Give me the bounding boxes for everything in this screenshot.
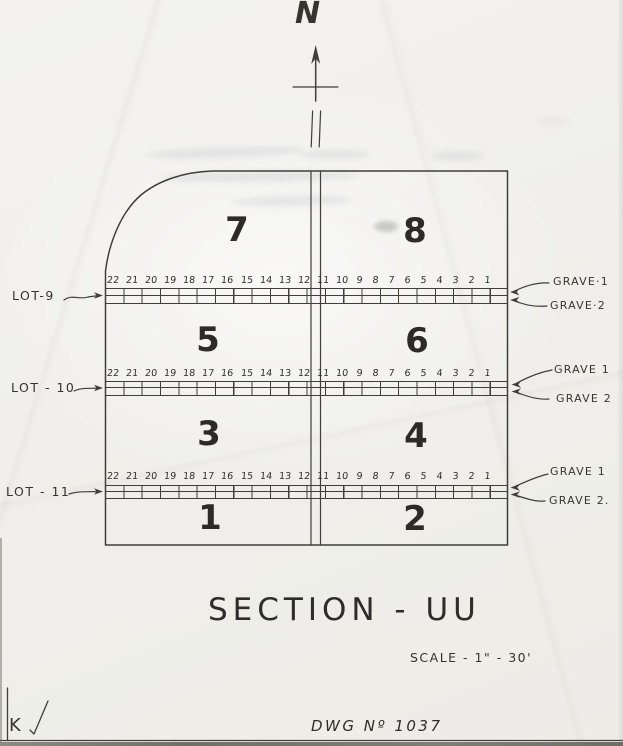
grave-number: 8 xyxy=(371,471,381,482)
lot-11-grave-1-label: GRAVE 1 xyxy=(550,465,606,478)
grave-number: 12 xyxy=(297,368,310,379)
grave-number: 4 xyxy=(434,471,444,482)
section-5-number: 5 xyxy=(196,320,220,360)
scan-edge-right xyxy=(617,0,623,746)
grave-number: 1 xyxy=(482,275,492,286)
grave-number: 13 xyxy=(278,368,291,379)
grave-number: 17 xyxy=(202,275,215,286)
grave-number: 5 xyxy=(418,275,428,286)
grave-number: 14 xyxy=(259,368,272,379)
grave-number: 10 xyxy=(335,471,348,482)
grave-number: 11 xyxy=(316,368,329,379)
grave-leader-arrows xyxy=(514,283,552,501)
scan-edge-bottom xyxy=(0,742,623,746)
grave-number: 13 xyxy=(278,471,291,482)
grave-number: 8 xyxy=(371,275,381,286)
grave-number: 20 xyxy=(145,368,158,379)
grave-number: 18 xyxy=(183,368,196,379)
grave-number: 18 xyxy=(183,471,196,482)
grave-number: 1 xyxy=(482,368,492,379)
lot-9-grave-numbers: 22212019181716151413121110987654321 xyxy=(107,275,492,286)
grave-number: 21 xyxy=(126,471,139,482)
grave-number: 6 xyxy=(402,368,412,379)
grave-number: 11 xyxy=(316,471,329,482)
lot-10-label: LOT - 10 xyxy=(11,380,75,395)
grave-number: 18 xyxy=(183,275,196,286)
grave-number: 2 xyxy=(466,368,476,379)
grave-number: 2 xyxy=(466,471,476,482)
grave-number: 7 xyxy=(387,368,397,379)
grave-number: 20 xyxy=(145,471,158,482)
grave-number: 9 xyxy=(355,368,365,379)
grave-number: 13 xyxy=(278,275,291,286)
grave-number: 22 xyxy=(107,368,120,379)
grave-number: 19 xyxy=(164,275,177,286)
grave-number: 3 xyxy=(450,368,460,379)
section-3-number: 3 xyxy=(197,414,221,454)
north-label: N xyxy=(295,0,320,31)
lot-10-grave-2-label: GRAVE 2 xyxy=(556,392,612,405)
grave-number: 2 xyxy=(466,275,476,286)
grave-number: 15 xyxy=(240,368,253,379)
section-1-number: 1 xyxy=(198,498,222,538)
lot-9-grave-1-label: GRAVE·1 xyxy=(553,275,609,288)
lot-9-label: LOT-9 xyxy=(12,288,55,303)
grave-number: 6 xyxy=(402,275,412,286)
lot-10-grave-strip xyxy=(105,381,508,396)
grave-number: 3 xyxy=(450,471,460,482)
grave-number: 12 xyxy=(297,471,310,482)
lot-11-grave-strip xyxy=(105,485,508,499)
grave-number: 12 xyxy=(297,275,310,286)
grave-number: 3 xyxy=(450,275,460,286)
dwg-number: DWG Nº 1037 xyxy=(311,717,443,735)
grave-number: 19 xyxy=(164,368,177,379)
scale-note: SCALE - 1" - 30' xyxy=(410,650,532,665)
scanned-drawing-page: 22212019181716151413121110987654321 2221… xyxy=(0,0,623,746)
grave-number: 17 xyxy=(202,471,215,482)
reviewer-initial: K xyxy=(9,715,21,736)
grave-number: 8 xyxy=(371,368,381,379)
section-6-number: 6 xyxy=(405,321,429,361)
grave-number: 4 xyxy=(434,368,444,379)
lot-11-grave-numbers: 22212019181716151413121110987654321 xyxy=(107,471,492,482)
grave-number: 10 xyxy=(335,368,348,379)
grave-number: 16 xyxy=(221,368,234,379)
lot-11-grave-2-label: GRAVE 2. xyxy=(549,494,610,507)
lot-9-grave-strip xyxy=(105,288,508,304)
grave-number: 4 xyxy=(434,275,444,286)
grave-number: 17 xyxy=(202,368,215,379)
lot-10-grave-1-label: GRAVE 1 xyxy=(554,363,610,376)
grave-number: 14 xyxy=(259,275,272,286)
grave-number: 22 xyxy=(107,471,120,482)
scan-edge-left xyxy=(0,538,2,746)
north-arrow-icon xyxy=(293,45,338,147)
grave-number: 11 xyxy=(316,275,329,286)
grave-number: 20 xyxy=(145,275,158,286)
lot-11-label: LOT - 11 xyxy=(6,484,70,499)
grave-number: 9 xyxy=(355,275,365,286)
grave-number: 19 xyxy=(164,471,177,482)
grave-number: 7 xyxy=(387,471,397,482)
section-7-number: 7 xyxy=(225,210,249,250)
grave-number: 14 xyxy=(259,471,272,482)
grave-number: 21 xyxy=(126,368,139,379)
grave-number: 7 xyxy=(387,275,397,286)
grave-number: 10 xyxy=(335,275,348,286)
check-mark-icon xyxy=(30,701,48,734)
lot-9-grave-2-label: GRAVE·2 xyxy=(550,299,606,312)
grave-number: 5 xyxy=(418,471,428,482)
grave-number: 16 xyxy=(221,275,234,286)
lot-10-grave-numbers: 22212019181716151413121110987654321 xyxy=(107,368,492,379)
section-8-number: 8 xyxy=(403,211,427,251)
grave-number: 16 xyxy=(221,471,234,482)
section-2-number: 2 xyxy=(403,499,427,539)
grave-number: 21 xyxy=(126,275,139,286)
grave-number: 6 xyxy=(402,471,412,482)
grave-number: 15 xyxy=(240,275,253,286)
grave-number: 1 xyxy=(482,471,492,482)
section-4-number: 4 xyxy=(404,416,428,456)
grave-number: 5 xyxy=(418,368,428,379)
grave-number: 15 xyxy=(240,471,253,482)
section-title: SECTION - UU xyxy=(208,592,481,628)
grave-number: 22 xyxy=(107,275,120,286)
grave-number: 9 xyxy=(355,471,365,482)
